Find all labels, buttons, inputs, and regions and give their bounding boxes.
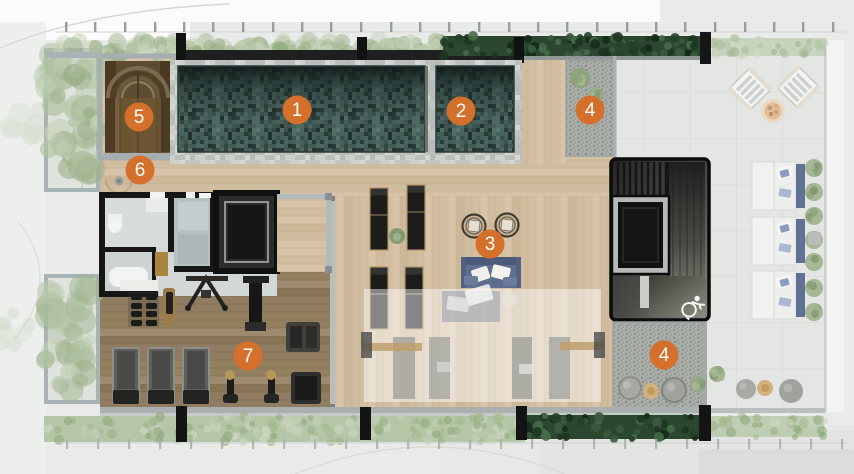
svg-text:4: 4 xyxy=(585,100,596,121)
svg-text:2: 2 xyxy=(456,101,467,122)
svg-text:3: 3 xyxy=(485,234,496,255)
svg-text:7: 7 xyxy=(243,346,254,367)
svg-text:4: 4 xyxy=(659,345,670,366)
svg-text:6: 6 xyxy=(135,160,146,181)
svg-text:1: 1 xyxy=(292,100,303,121)
svg-text:5: 5 xyxy=(134,107,145,128)
